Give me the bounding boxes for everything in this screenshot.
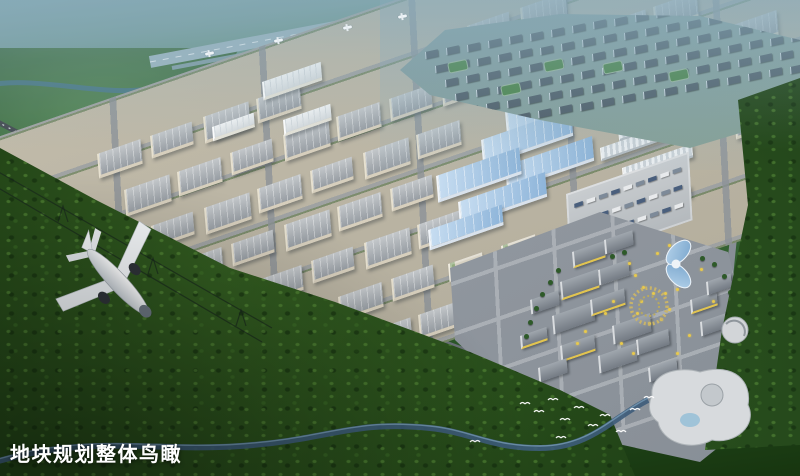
aerial-masterplan-rendering: 地块规划整体鸟瞰 — [0, 0, 800, 476]
corner-vignette — [0, 0, 800, 476]
caption-title: 地块规划整体鸟瞰 — [10, 438, 182, 467]
